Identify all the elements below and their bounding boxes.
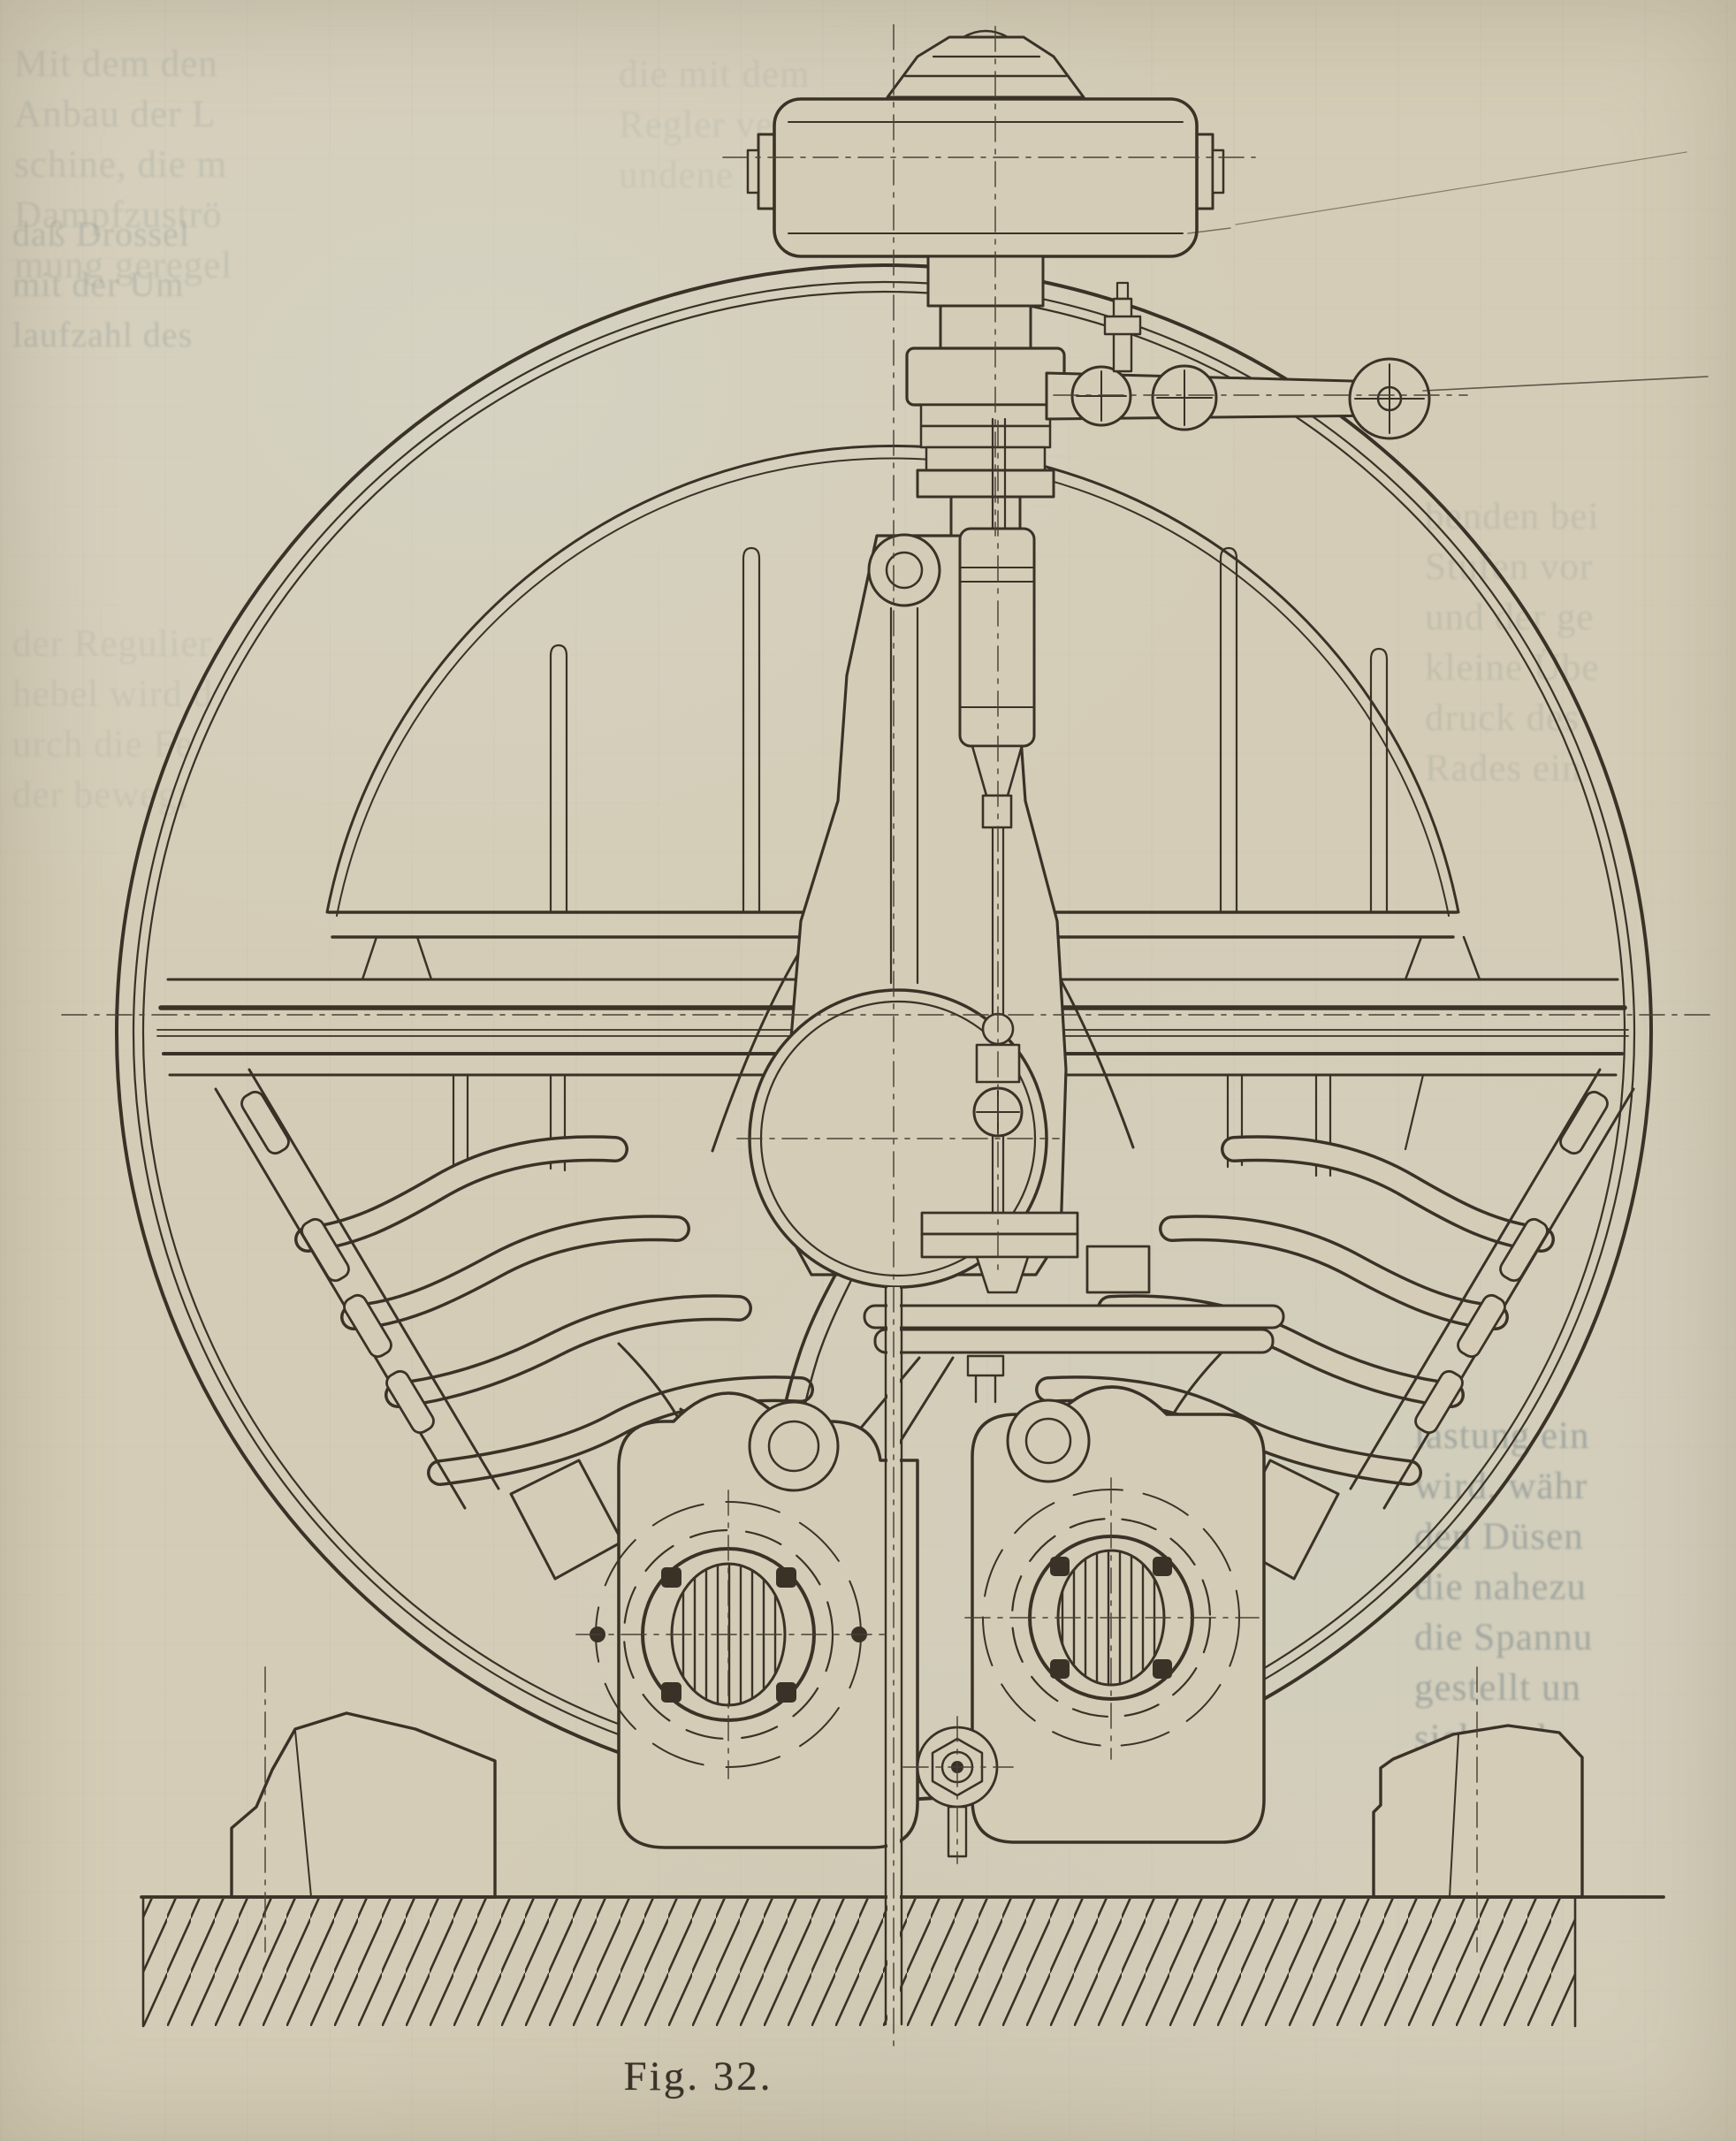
figure-drawing: Sectional line drawing of a steam turbin… [0,0,1736,2141]
pedestal-right [1374,1726,1582,1897]
figure-caption: Fig. 32. [495,2053,902,2100]
page: Mit dem denAnbau der Lschine, die mDampf… [0,0,1736,2141]
drain-fitting [917,1727,997,1856]
pedestal-left [232,1713,495,1897]
governor-assembly [748,31,1708,536]
pendulum-linkage [869,535,940,606]
